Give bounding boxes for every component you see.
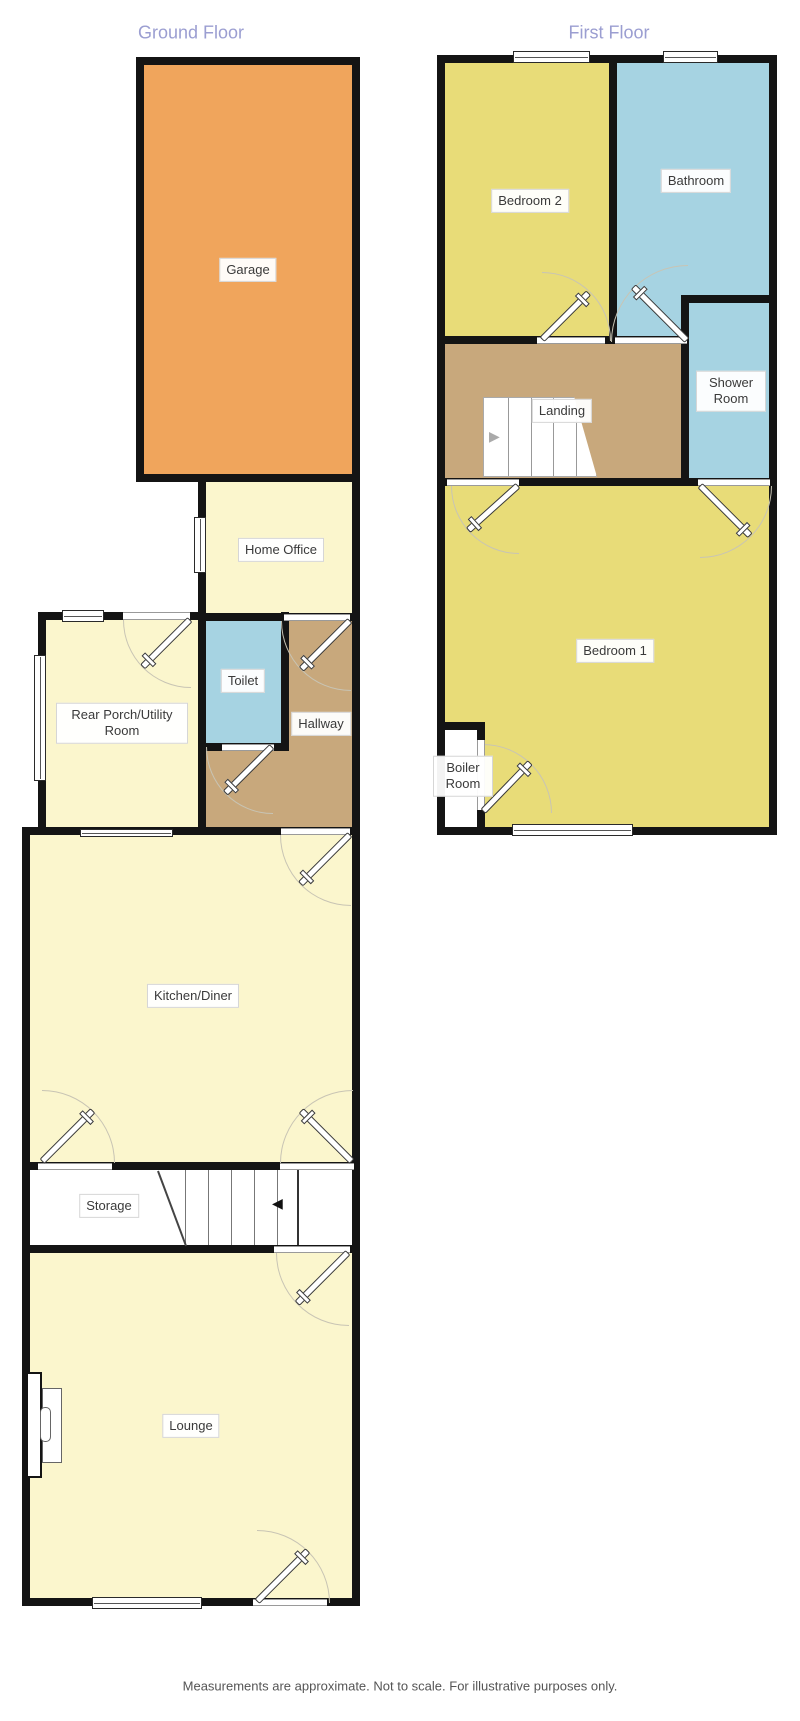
stairs-direction-arrow: ▶ (489, 429, 500, 443)
wall (136, 57, 144, 482)
wall (22, 827, 30, 1606)
door-opening (274, 1246, 350, 1253)
wall (136, 474, 360, 482)
door-opening (280, 1163, 354, 1170)
window (34, 655, 46, 781)
window (92, 1597, 202, 1609)
room-label-bedroom-2: Bedroom 2 (491, 189, 569, 213)
wall (437, 55, 445, 835)
floorplan-canvas: Ground Floor First Floor (0, 0, 800, 1721)
door-opening (123, 612, 190, 620)
wall (681, 295, 777, 303)
door-opening (615, 337, 687, 344)
stair-tread (208, 1170, 209, 1245)
room-label-landing: Landing (532, 399, 592, 423)
wall (437, 55, 777, 63)
window (512, 824, 633, 836)
door-opening (698, 479, 770, 486)
room-label-toilet: Toilet (221, 669, 265, 693)
staircase-ground (158, 1170, 352, 1245)
room-label-home-office: Home Office (238, 538, 324, 562)
window (80, 829, 173, 837)
disclaimer-text: Measurements are approximate. Not to sca… (183, 1679, 618, 1694)
room-label-shower-room: Shower Room (696, 371, 766, 412)
wall (609, 63, 617, 344)
wall (136, 57, 360, 65)
room-label-bathroom: Bathroom (661, 169, 731, 193)
room-label-boiler-room: Boiler Room (433, 756, 493, 797)
stair-edge (297, 1170, 299, 1245)
door-opening (284, 614, 350, 621)
wall (198, 612, 206, 835)
room-label-bedroom-1: Bedroom 1 (576, 639, 654, 663)
room-label-lounge: Lounge (162, 1414, 219, 1438)
room-label-rear-porch: Rear Porch/Utility Room (56, 703, 188, 744)
room-label-hallway: Hallway (291, 712, 351, 736)
stair-tread (231, 1170, 232, 1245)
door-opening (281, 828, 350, 835)
window (513, 51, 590, 63)
wall (769, 55, 777, 835)
room-label-storage: Storage (79, 1194, 139, 1218)
stair-break-line (157, 1171, 187, 1247)
fireplace-hearth (40, 1407, 51, 1442)
window (62, 610, 104, 622)
first-floor-title: First Floor (569, 23, 650, 44)
stair-tread (185, 1170, 186, 1245)
room-label-kitchen-diner: Kitchen/Diner (147, 984, 239, 1008)
room-label-garage: Garage (219, 258, 276, 282)
window (194, 517, 206, 573)
door-opening (253, 1599, 327, 1606)
stair-tread (508, 398, 509, 476)
door-opening (447, 479, 519, 486)
window (663, 51, 718, 63)
ground-floor-title: Ground Floor (138, 23, 244, 44)
door-opening (38, 1163, 112, 1170)
stair-tread (254, 1170, 255, 1245)
stairs-direction-arrow: ◀ (272, 1196, 283, 1210)
